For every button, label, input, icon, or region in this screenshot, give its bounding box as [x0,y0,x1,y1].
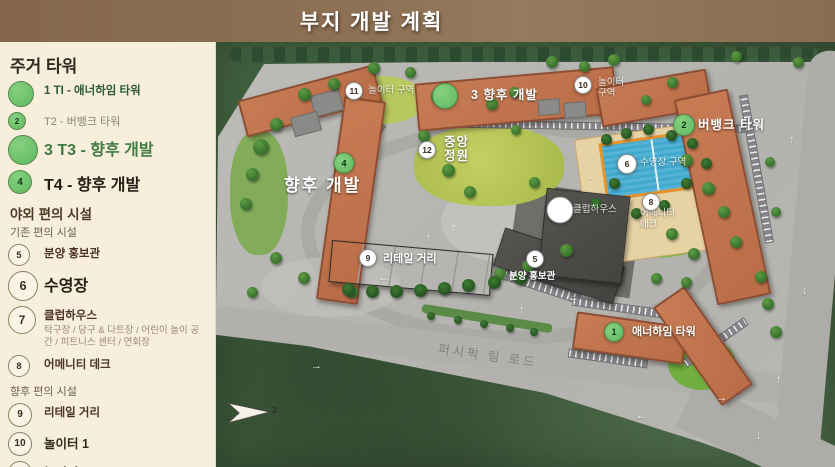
traffic-arrow-icon: ← [378,272,389,284]
tree-icon [488,276,501,289]
tree-icon [530,328,538,336]
legend-item-7: 7클럽하우스탁구장 / 당구 & 다트장 / 어린이 놀이 공간 / 피트니스 … [8,306,205,350]
legend-circle-wrap: 2 [8,112,44,130]
legend-circle-icon [8,81,34,107]
rooftop-unit [563,101,586,119]
traffic-arrow-icon: ↑ [776,374,782,386]
map-marker-12: 12 [418,141,436,159]
legend-circle-icon [8,135,38,165]
map-marker-blank [432,83,458,109]
tree-icon [579,61,590,72]
map-label: 수영장 구역 [640,158,686,169]
legend-section-0: 주거 타워1 TI - 애너하임 타워2T2 - 버뱅크 타워3 T3 - 향후… [8,52,205,195]
legend-item-label: T4 - 향후 개발 [44,170,140,195]
tree-icon [270,118,283,131]
tree-icon [771,207,781,217]
map-marker-2: 2 [673,114,695,136]
site-plan-slide: 부지 개발 계획 주거 타워1 TI - 애너하임 타워2T2 - 버뱅크 타워… [0,0,835,467]
legend-item-label: 수영장 [44,271,88,296]
traffic-arrow-icon: ↓ [802,285,808,297]
legend-circle-icon: 6 [8,271,38,301]
tree-icon [609,178,620,189]
legend-item-label: 놀이터 2 [44,461,89,467]
tree-icon [240,198,252,210]
legend-circle-wrap: 6 [8,271,44,301]
rooftop-unit [537,98,560,116]
tree-icon [270,252,282,264]
compass-letter: z [272,404,278,416]
map-marker-6: 6 [617,154,637,174]
legend-circle-wrap: 5 [8,244,44,266]
legend-circle-icon: 5 [8,244,30,266]
site-map: ↑←→←↑↓←↑←↑↓↓↑→ 향후 개발3 향후 개발버뱅크 타워애너하임 타워… [216,42,835,467]
legend-item-4: 4T4 - 향후 개발 [8,170,205,195]
tree-icon [687,138,698,149]
map-label: 버뱅크 타워 [698,118,765,132]
tree-icon [298,88,311,101]
traffic-arrow-icon: ↓ [588,170,594,182]
tree-icon [667,77,678,88]
legend-circle-icon: 9 [8,403,32,427]
legend-label-col: T4 - 향후 개발 [44,170,140,195]
tree-icon [681,178,692,189]
legend-item-label: T2 - 버뱅크 타워 [44,112,120,129]
legend-section-2: 향후 편의 시설9리테일 거리10놀이터 111놀이터 212중앙 정원 [8,383,205,467]
tree-icon [793,57,804,68]
tree-icon [701,158,712,169]
traffic-arrow-icon: ← [568,292,579,304]
legend-circle-wrap: 9 [8,403,44,427]
legend-label-col: 수영장 [44,271,88,296]
legend-heading: 주거 타워 [10,52,205,77]
legend-item-label: 클럽하우스 [44,306,202,323]
tree-icon [390,285,403,298]
map-marker-5: 5 [526,250,544,268]
legend-sidebar: 주거 타워1 TI - 애너하임 타워2T2 - 버뱅크 타워3 T3 - 향후… [0,42,216,467]
map-label: 리테일 거리 [383,253,437,266]
legend-subheading: 기존 편의 시설 [10,224,205,240]
legend-label-col: 클럽하우스탁구장 / 당구 & 다트장 / 어린이 놀이 공간 / 피트니스 센… [44,306,202,350]
legend-item-sublabel: 탁구장 / 당구 & 다트장 / 어린이 놀이 공간 / 피트니스 센터 / 연… [44,325,202,350]
perimeter-hedge [230,47,818,62]
tree-icon [681,277,692,288]
legend-item-label: 리테일 거리 [44,403,100,420]
map-label: 클럽하우스 [573,205,617,216]
legend-item-10: 10놀이터 1 [8,432,205,456]
legend-heading: 야외 편의 시설 [10,203,205,223]
tree-icon [608,54,620,66]
map-marker-4: 4 [334,153,355,174]
legend-item-6: 6수영장 [8,271,205,301]
legend-item-label: 어메니티 데크 [44,355,111,372]
legend-circle-icon: 4 [8,170,32,194]
map-label: 애너하임 타워 [632,326,696,339]
tree-icon [414,284,427,297]
tree-icon [246,168,259,181]
tree-icon [601,134,612,145]
page-title: 부지 개발 계획 [0,6,835,36]
legend-label-col: 3 T3 - 향후 개발 [44,135,154,160]
tree-icon [462,279,475,292]
tree-icon [546,56,558,68]
map-label: 놀이터 구역 [598,78,632,100]
tree-icon [366,285,379,298]
legend-item-3 T3 - 향후 개발: 3 T3 - 향후 개발 [8,135,205,165]
legend-item-11: 11놀이터 2 [8,461,205,467]
tree-icon [464,186,476,198]
tree-icon [762,298,774,310]
traffic-arrow-icon: ↑ [789,134,795,146]
tree-icon [730,236,742,248]
legend-circle-wrap: 8 [8,355,44,377]
map-label: 향후 개발 [284,176,361,196]
tree-icon [511,125,521,135]
tree-icon [253,139,269,155]
tree-icon [765,157,775,167]
tree-icon [731,51,742,62]
tree-icon [718,206,730,218]
tree-icon [298,272,310,284]
legend-circle-wrap [8,81,44,107]
tree-icon [405,67,416,78]
traffic-arrow-icon: ↑ [519,304,525,316]
map-marker-9: 9 [359,249,377,267]
map-marker-11: 11 [345,82,363,100]
title-bar: 부지 개발 계획 [0,0,835,42]
traffic-arrow-icon: ↑ [451,222,457,234]
map-marker-blank [547,197,574,224]
legend-label-col: 어메니티 데크 [44,355,111,372]
map-label: 3 향후 개발 [471,88,538,102]
legend-item-5: 5분양 홍보관 [8,244,205,266]
tree-icon [368,62,380,74]
tree-icon [702,182,715,195]
map-label: 놀이터 구역 [368,86,414,97]
traffic-arrow-icon: ↓ [756,430,762,442]
map-label: 어메니티 데크 [640,209,684,231]
legend-label-col: T2 - 버뱅크 타워 [44,112,120,129]
map-label: 중앙 정원 [444,135,476,164]
tree-icon [328,78,340,90]
tree-icon [454,316,462,324]
tree-icon [342,283,355,296]
tree-icon [770,326,782,338]
map-label: 분양 홍보관 [509,272,555,283]
legend-label-col: 놀이터 2 [44,461,89,467]
legend-section-1: 야외 편의 시설기존 편의 시설5분양 홍보관6수영장7클럽하우스탁구장 / 당… [8,203,205,377]
tree-icon [427,312,435,320]
central-garden [414,126,564,206]
tree-icon [480,320,488,328]
traffic-arrow-icon: → [311,360,322,372]
legend-item-2: 2T2 - 버뱅크 타워 [8,112,205,130]
tree-icon [247,287,258,298]
legend-label-col: 리테일 거리 [44,403,100,420]
traffic-arrow-icon: → [716,392,727,404]
legend-circle-icon: 7 [8,306,36,334]
map-marker-8: 8 [642,193,660,211]
legend-circle-icon: 2 [8,112,26,130]
traffic-arrow-icon: ← [636,410,647,422]
tree-icon [643,124,654,135]
legend-circle-wrap: 7 [8,306,44,334]
legend-circle-wrap: 4 [8,170,44,194]
legend-circle-icon: 8 [8,355,30,377]
legend-circle-wrap [8,135,44,165]
tree-icon [641,95,651,105]
legend-subheading: 향후 편의 시설 [10,383,205,399]
legend-item-label: 1 TI - 애너하임 타워 [44,81,141,98]
legend-item-label: 분양 홍보관 [44,244,100,261]
tree-icon [651,273,662,284]
tree-icon [755,271,767,283]
map-marker-1: 1 [604,322,624,342]
legend-circle-icon: 11 [8,461,32,467]
tree-icon [529,177,540,188]
legend-label-col: 놀이터 1 [44,432,89,452]
tree-icon [560,244,573,257]
legend-item-8: 8어메니티 데크 [8,355,205,377]
legend-label-col: 분양 홍보관 [44,244,100,261]
traffic-arrow-icon: ↑ [426,232,432,244]
north-arrow: z [226,397,286,434]
map-marker-10: 10 [574,76,592,94]
tree-icon [506,324,514,332]
legend-item-1 TI - 애너하임 타워: 1 TI - 애너하임 타워 [8,81,205,107]
tree-icon [688,248,700,260]
legend-label-col: 1 TI - 애너하임 타워 [44,81,141,98]
legend-circle-wrap: 10 [8,432,44,456]
legend-item-label: 놀이터 1 [44,432,89,452]
legend-circle-wrap: 11 [8,461,44,467]
tree-icon [621,128,632,139]
legend-circle-icon: 10 [8,432,32,456]
tree-icon [442,164,455,177]
legend-item-label: 3 T3 - 향후 개발 [44,135,154,160]
legend-item-9: 9리테일 거리 [8,403,205,427]
tree-icon [438,282,451,295]
